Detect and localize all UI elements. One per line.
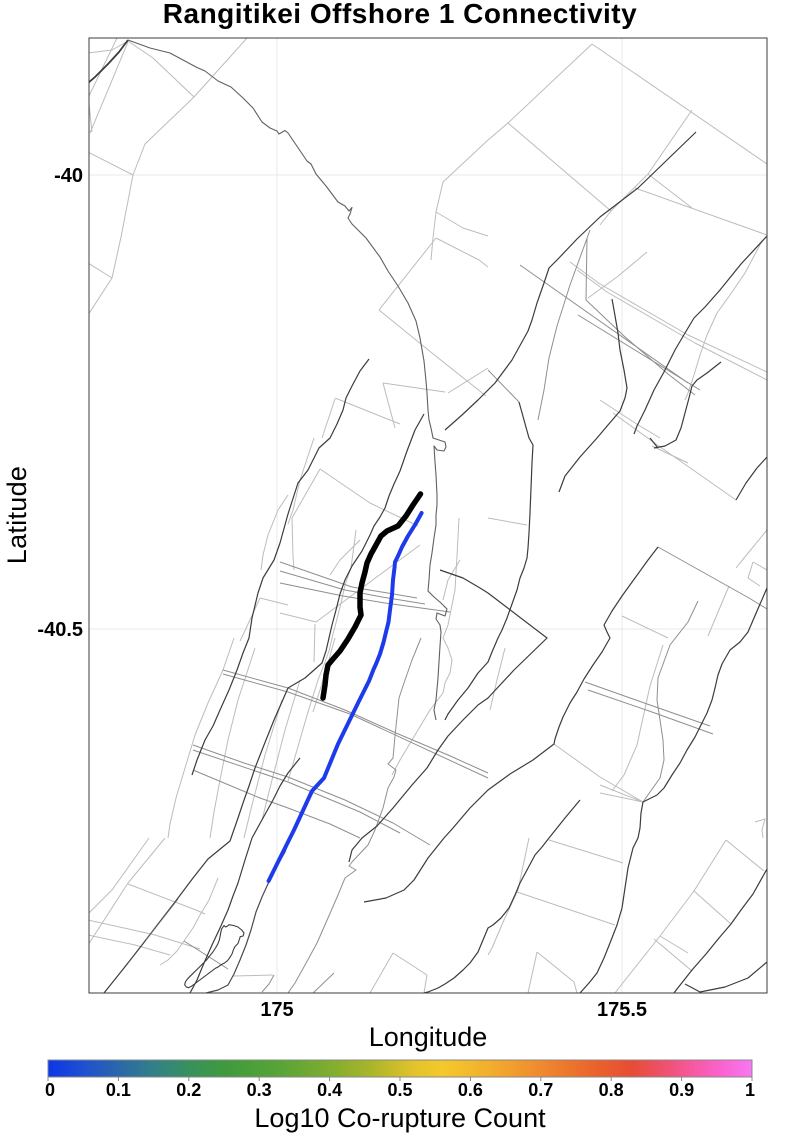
svg-text:0: 0 — [45, 1080, 55, 1100]
svg-text:-40: -40 — [54, 165, 83, 187]
svg-text:Rangitikei Offshore 1 Connecti: Rangitikei Offshore 1 Connectivity — [163, 0, 637, 29]
svg-text:0.5: 0.5 — [387, 1080, 412, 1100]
svg-text:0.6: 0.6 — [458, 1080, 483, 1100]
svg-text:0.8: 0.8 — [599, 1080, 624, 1100]
svg-text:0.4: 0.4 — [317, 1080, 342, 1100]
svg-text:Longitude: Longitude — [369, 1022, 488, 1052]
svg-text:-40.5: -40.5 — [37, 619, 83, 641]
svg-text:0.9: 0.9 — [669, 1080, 694, 1100]
svg-text:175.5: 175.5 — [597, 999, 647, 1021]
svg-text:1: 1 — [745, 1080, 755, 1100]
svg-text:0.2: 0.2 — [176, 1080, 201, 1100]
svg-text:175: 175 — [260, 999, 293, 1021]
svg-text:0.1: 0.1 — [106, 1080, 131, 1100]
svg-text:Log10 Co-rupture Count: Log10 Co-rupture Count — [254, 1103, 546, 1133]
svg-text:0.3: 0.3 — [247, 1080, 272, 1100]
svg-text:Latitude: Latitude — [2, 466, 32, 564]
svg-text:0.7: 0.7 — [528, 1080, 553, 1100]
